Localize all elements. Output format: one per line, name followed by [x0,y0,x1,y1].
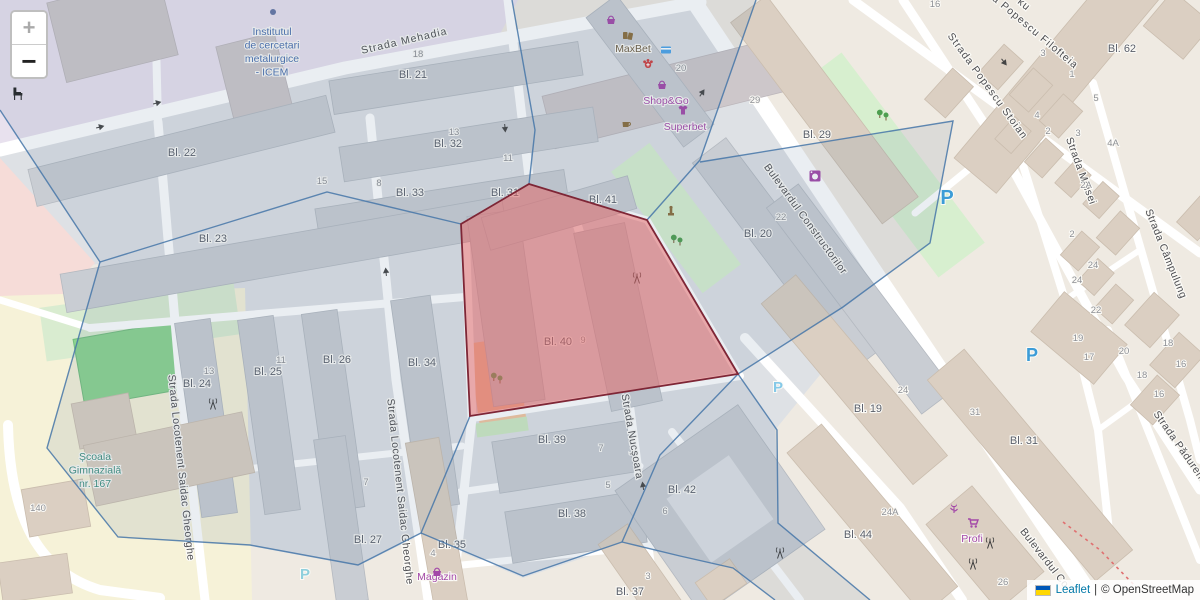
block-label: Bl. 19 [854,403,882,415]
housenumber-label: 18 [1137,370,1148,381]
housenumber-label: 24 [898,385,909,396]
housenumber-label: 24 [1072,275,1083,286]
housenumber-label: 2 [1069,229,1074,240]
housenumber-label: 4 [430,548,435,559]
attribution-separator: | [1094,584,1097,596]
housenumber-label: 1 [1069,69,1074,80]
housenumber-label: 3 [1075,128,1080,139]
block-label: Bl. 37 [616,586,644,598]
housenumber-label: 24 [1088,260,1099,271]
zoom-out-button[interactable]: − [12,45,46,77]
housenumber-label: 19 [1073,333,1084,344]
housenumber-label: 140 [30,503,46,514]
housenumber-label: 5 [1093,93,1098,104]
leaflet-link[interactable]: Leaflet [1056,584,1091,596]
housenumber-label: 3 [645,571,650,582]
housenumber-label: 16 [1154,389,1165,400]
parking-icon: P [1026,345,1038,365]
housenumber-label: 2A [1080,180,1092,191]
housenumber-label: 16 [1176,359,1187,370]
housenumber-label: 29 [750,95,761,106]
housenumber-label: 18 [1163,338,1174,349]
attribution-bar: Leaflet | © OpenStreetMap [1027,580,1200,600]
housenumber-label: 2 [1045,126,1050,137]
parking-icon: P [773,379,783,396]
map-canvas[interactable]: Strada Mehadiaada Popescu FilofteiaStrad… [0,0,1200,600]
block-label: Bl. 29 [803,129,831,141]
housenumber-label: 3 [1040,48,1045,59]
block-label: Bl. 31 [1010,435,1038,447]
parking-icon: P [940,187,953,209]
block-label: Bl. 62 [1108,43,1136,55]
zoom-control: + − [10,10,48,79]
housenumber-label: 24A [882,507,900,518]
zoom-in-button[interactable]: + [12,12,46,45]
housenumber-label: 31 [970,407,981,418]
block-label: Bl. 44 [844,529,872,541]
housenumber-label: 4 [1034,110,1039,121]
osm-link[interactable]: © OpenStreetMap [1101,584,1194,596]
housenumber-label: 22 [1091,305,1102,316]
housenumber-label: 26 [998,577,1009,588]
housenumber-label: 17 [1084,352,1095,363]
map-screen: Strada Mehadiaada Popescu FilofteiaStrad… [0,0,1200,600]
housenumber-label: 16 [930,0,941,10]
housenumber-label: 20 [1119,346,1130,357]
parking-icon: P [300,566,310,583]
housenumber-label: 4A [1107,138,1119,149]
poi-label: Profi [961,533,983,545]
ukraine-flag-icon [1035,585,1051,596]
